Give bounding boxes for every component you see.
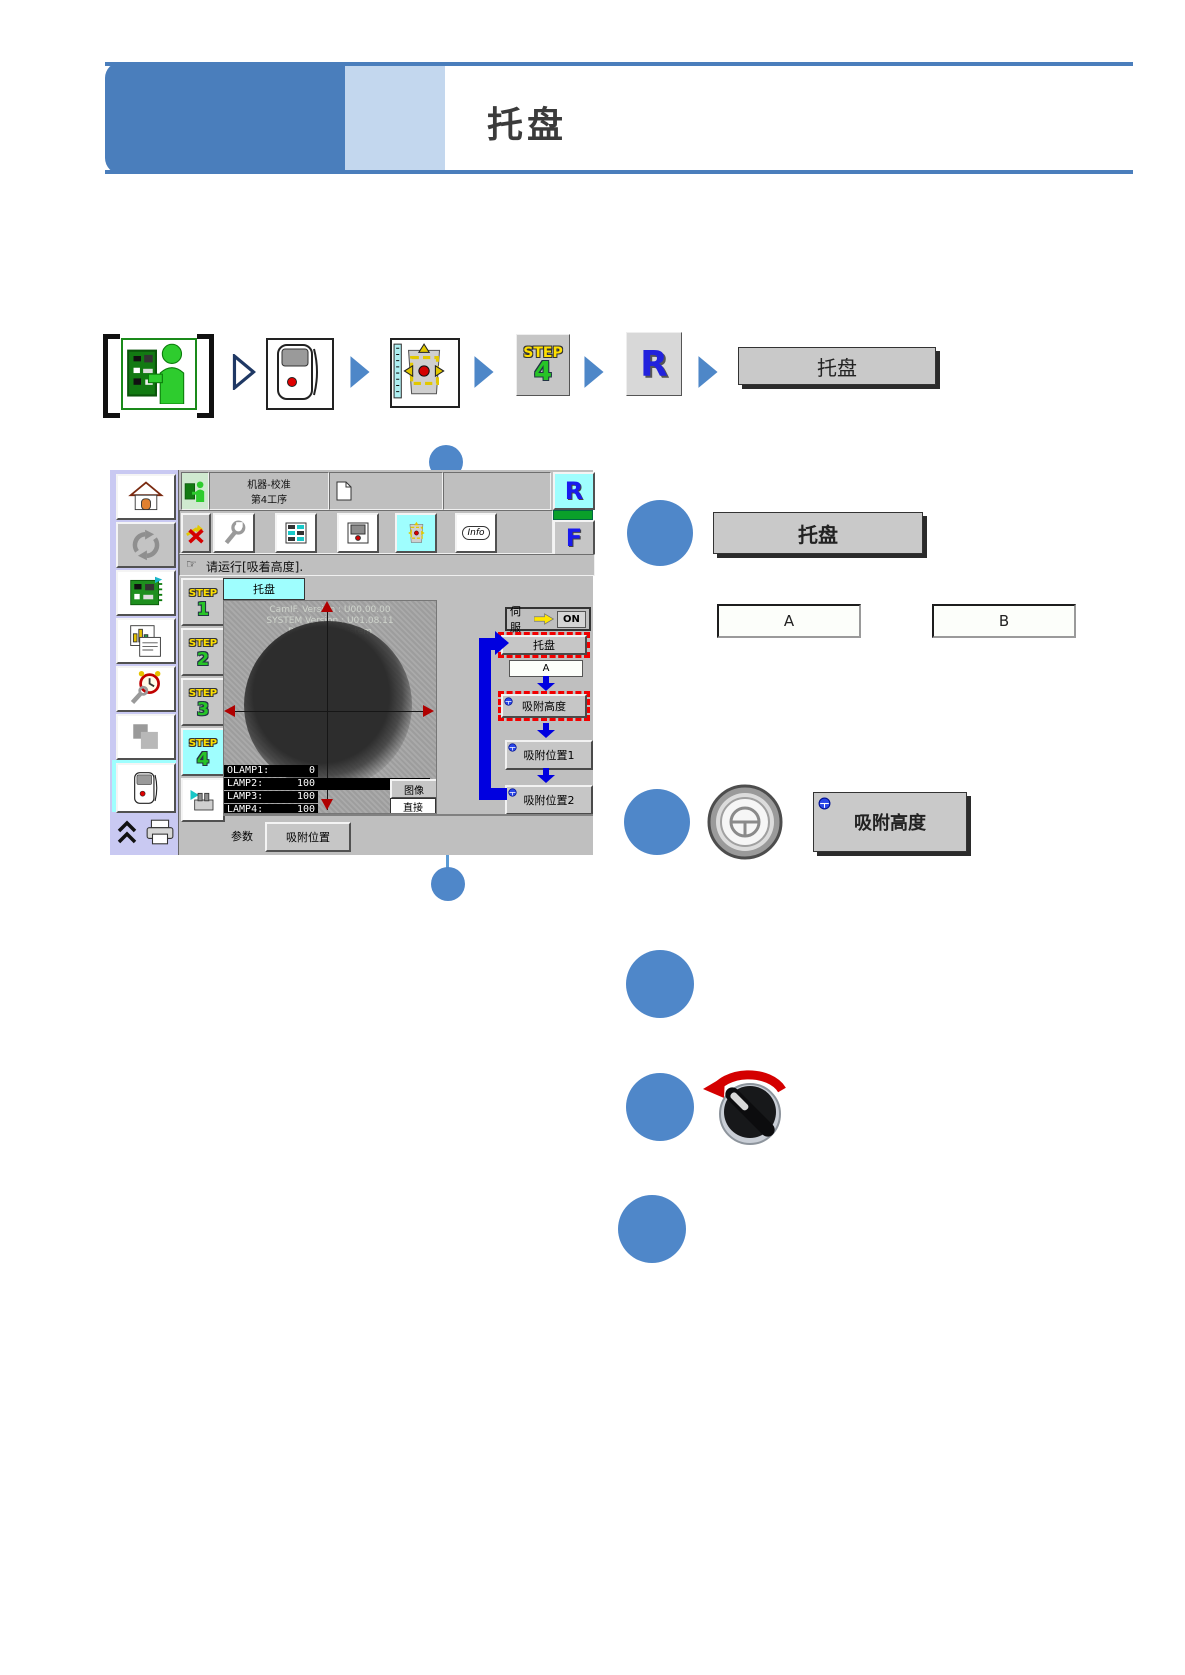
step-num: 4 xyxy=(197,751,210,768)
height-button-label: 吸附高度 xyxy=(854,809,926,835)
servo-box: 伺服 ON xyxy=(505,607,591,631)
lamp-name: OLAMP1: xyxy=(227,765,269,777)
option-b-label: B xyxy=(999,612,1009,630)
direct-mode-label: 直接 xyxy=(403,799,423,814)
pickup-pos-param-label: 吸附位置 xyxy=(286,829,330,845)
r-letter: R xyxy=(565,477,583,505)
lamp-row: OLAMP1: 0 xyxy=(224,765,318,777)
tray-value-box[interactable]: A xyxy=(509,660,583,677)
wrench-icon xyxy=(221,520,247,546)
double-chevron-up-icon xyxy=(115,819,139,845)
yellow-arrow-icon xyxy=(534,613,553,625)
step-num: 2 xyxy=(197,651,210,668)
tray-tab[interactable]: 托盘 xyxy=(223,578,305,600)
lamp-row: LAMP4: 100 xyxy=(224,804,318,814)
image-mode-button[interactable]: 图像 xyxy=(390,779,437,799)
pickup-pos2-button[interactable]: 吸附位置2 xyxy=(505,785,593,815)
pickup-pos2-label: 吸附位置2 xyxy=(524,792,575,808)
rear-indicator-strip xyxy=(553,510,593,520)
push-button-icon xyxy=(706,783,784,861)
maintenance-button[interactable] xyxy=(116,666,176,712)
titlebar-spacer xyxy=(443,472,551,510)
hand-pointer-icon: ☞ xyxy=(186,557,197,571)
flow-loop-bottom xyxy=(479,788,507,800)
f-letter: F xyxy=(566,524,582,552)
message-text: 请运行[吸着高度]. xyxy=(206,558,303,575)
step3-button[interactable]: STEP 3 xyxy=(181,678,225,726)
cancel-button[interactable] xyxy=(181,513,211,553)
crosshair-horizontal xyxy=(226,711,432,712)
tray-nav-label: 托盘 xyxy=(817,352,857,381)
option-a-label: A xyxy=(784,612,794,630)
step2-button[interactable]: STEP 2 xyxy=(181,628,225,676)
machine-screenshot: 机器-校准 第4工序 R xyxy=(110,470,592,855)
cancel-icon xyxy=(185,521,207,545)
screen-title-line2: 第4工序 xyxy=(251,491,287,506)
lamp-row: LAMP3: 100 xyxy=(224,791,318,803)
feeder-step-button[interactable] xyxy=(181,778,225,822)
arrow-right-icon xyxy=(348,354,372,390)
production-button[interactable] xyxy=(116,522,176,568)
servo-state[interactable]: ON xyxy=(557,611,586,628)
layout-button[interactable] xyxy=(116,714,176,760)
data-table-button[interactable] xyxy=(275,513,317,553)
step-circle-3 xyxy=(626,950,694,1018)
height-flow-highlight: 吸附高度 xyxy=(498,691,590,721)
screen-main: 机器-校准 第4工序 R xyxy=(178,470,593,855)
mode-indicator xyxy=(181,472,209,510)
flow-down-arrow xyxy=(533,768,559,783)
message-bar: ☞ 请运行[吸着高度]. xyxy=(179,554,595,576)
blocks-icon xyxy=(128,720,164,754)
camera-view: CamIF. Version : U00.00.00 SYSTEM Versio… xyxy=(223,600,437,814)
printer-icon xyxy=(145,819,175,845)
home-icon xyxy=(127,479,165,515)
tray-flow-label: 托盘 xyxy=(533,637,555,653)
file-box xyxy=(329,472,443,510)
feeder-mini-icon xyxy=(188,785,218,815)
servo-label: 伺服 xyxy=(510,603,531,635)
red-arrow-top xyxy=(321,601,333,612)
step1-button[interactable]: STEP 1 xyxy=(181,578,225,626)
servo-mini-icon xyxy=(508,788,517,797)
header-bottom-rule xyxy=(105,170,1133,174)
lamp-name: LAMP4: xyxy=(227,804,263,814)
header-accent-block xyxy=(345,66,445,170)
fine-adjust-icon[interactable] xyxy=(390,338,460,408)
lamp-value: 100 xyxy=(297,791,315,803)
tray-flow-button[interactable]: 托盘 xyxy=(501,635,587,655)
flow-loop-arrowhead xyxy=(495,631,509,655)
step-circle-4 xyxy=(626,1073,694,1141)
unit-button[interactable] xyxy=(116,763,176,813)
arrow-right-icon xyxy=(582,354,606,390)
option-b-button[interactable]: B xyxy=(932,604,1076,638)
feeder-unit-icon[interactable] xyxy=(266,338,334,410)
lamp-name: LAMP2: xyxy=(227,778,263,790)
bracket-open xyxy=(103,334,120,418)
fine-adjust-icon xyxy=(403,520,429,546)
chevron-outline-icon xyxy=(232,354,256,390)
nozzle-blob xyxy=(244,621,412,789)
callout-dot-2 xyxy=(431,867,465,901)
red-arrow-bottom xyxy=(321,799,333,810)
arrow-right-icon xyxy=(696,354,720,390)
tray-flow-highlight: 托盘 xyxy=(498,632,590,658)
screen-title-box: 机器-校准 第4工序 xyxy=(209,472,329,510)
report-chart-icon xyxy=(127,623,165,659)
report-button[interactable] xyxy=(116,618,176,664)
table-icon xyxy=(284,521,308,545)
height-button-callout[interactable]: 吸附高度 xyxy=(813,792,967,852)
step-number: 4 xyxy=(534,360,552,384)
servo-mini-icon xyxy=(504,697,513,706)
red-arrow-left xyxy=(224,705,235,717)
param-label: 参数 xyxy=(231,828,253,844)
lamp-row: LAMP2: 100 xyxy=(224,778,318,790)
operator-setup-icon xyxy=(121,338,197,410)
step4-key[interactable]: STEP 4 xyxy=(516,334,570,396)
parameter-bar: 参数 吸附位置 xyxy=(223,814,593,857)
flow-down-arrow xyxy=(533,723,559,738)
fine-adjust-button[interactable] xyxy=(395,513,437,553)
direct-mode-button[interactable]: 直接 xyxy=(390,798,436,814)
tray-button-callout[interactable]: 托盘 xyxy=(713,512,923,554)
option-a-button[interactable]: A xyxy=(717,604,861,638)
step-num: 3 xyxy=(197,701,210,718)
height-flow-label: 吸附高度 xyxy=(522,698,566,714)
rear-select-button[interactable]: R xyxy=(553,472,595,510)
lamp-value: 0 xyxy=(309,765,315,777)
screen-sidebar xyxy=(110,470,178,855)
servo-mini-icon xyxy=(818,797,831,810)
rear-key[interactable]: R xyxy=(626,332,682,396)
lamp-value: 100 xyxy=(297,778,315,790)
bracket-close xyxy=(197,334,214,418)
cycle-icon xyxy=(128,527,164,563)
step-circle-5 xyxy=(618,1195,686,1263)
manual-page: 托盘 xyxy=(0,0,1185,1675)
collapse-button[interactable] xyxy=(112,812,142,852)
pcb-icon xyxy=(127,575,165,611)
rotary-knob-icon xyxy=(698,1056,798,1148)
step4-button[interactable]: STEP 4 xyxy=(181,728,225,776)
info-icon: Info xyxy=(462,526,489,540)
tray-button-label: 托盘 xyxy=(798,519,838,548)
tray-nav-button[interactable]: 托盘 xyxy=(738,347,936,385)
pickup-pos1-label: 吸附位置1 xyxy=(524,747,575,763)
save-button[interactable] xyxy=(337,513,379,553)
tools-button[interactable] xyxy=(213,513,255,553)
step-num: 1 xyxy=(197,601,210,618)
tray-value: A xyxy=(543,663,550,674)
red-arrow-right xyxy=(423,705,434,717)
lamp-value: 100 xyxy=(297,804,315,814)
step-circle-2 xyxy=(624,789,690,855)
height-flow-button[interactable]: 吸附高度 xyxy=(501,694,587,718)
step-circle-1 xyxy=(627,500,693,566)
page-title: 托盘 xyxy=(487,96,567,148)
info-button[interactable]: Info xyxy=(455,513,497,553)
screen-title-line1: 机器-校准 xyxy=(247,476,291,491)
clock-wrench-icon xyxy=(127,671,165,707)
r-letter: R xyxy=(640,344,668,385)
pickup-pos-param-button[interactable]: 吸附位置 xyxy=(265,822,351,852)
operator-setup-icon xyxy=(184,476,206,506)
servo-mini-icon xyxy=(508,743,517,752)
flow-loop-bar xyxy=(479,638,491,800)
lamp-name: LAMP3: xyxy=(227,791,263,803)
tray-tab-label: 托盘 xyxy=(253,581,275,597)
document-icon xyxy=(336,481,352,501)
flow-down-arrow xyxy=(533,676,559,691)
board-data-button[interactable] xyxy=(116,570,176,616)
print-button[interactable] xyxy=(144,812,176,852)
save-icon xyxy=(346,521,370,545)
feeder-unit-icon xyxy=(129,767,163,809)
arrow-right-icon xyxy=(472,354,496,390)
pickup-pos1-button[interactable]: 吸附位置1 xyxy=(505,740,593,770)
home-button[interactable] xyxy=(116,474,176,520)
image-mode-label: 图像 xyxy=(404,782,424,797)
header-chapter-block xyxy=(105,62,345,174)
front-select-button[interactable]: F xyxy=(553,520,595,556)
